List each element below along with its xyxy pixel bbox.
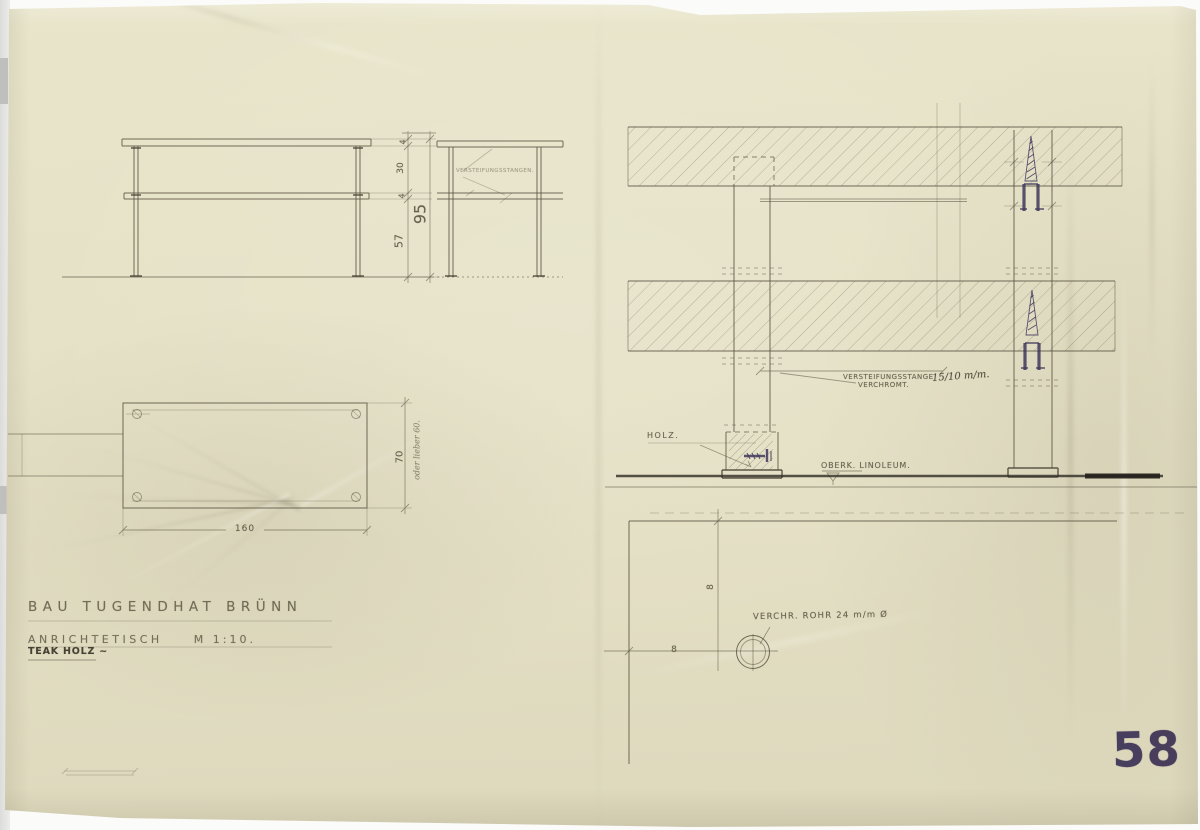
plan-view-drawing xyxy=(8,397,412,536)
scanned-drawing-sheet: 4 30 4 57 95 VERSTEIFUNGSSTANGEN. 160 70… xyxy=(0,0,1200,830)
front-elevation-drawing xyxy=(62,131,440,283)
stiffener-label-line1: VERSTEIFUNGSSTANGE xyxy=(843,373,934,381)
dim-plan-depth-note: oder lieber 60. xyxy=(413,420,422,480)
section-detail-drawing xyxy=(605,103,1197,513)
dim-top-thickness: 4 xyxy=(399,139,408,144)
stray-marks xyxy=(62,768,138,775)
plan-detail-drawing xyxy=(604,509,1117,764)
title-project: BAU TUGENDHAT BRÜNN xyxy=(28,599,302,615)
tracing-paper: 4 30 4 57 95 VERSTEIFUNGSSTANGEN. 160 70… xyxy=(0,0,1200,830)
detail-offset-x: 8 xyxy=(706,584,716,590)
drawing-linework xyxy=(0,0,1200,830)
detail-offset-y: 8 xyxy=(671,645,677,655)
stiffener-label-line2: VERCHROMT. xyxy=(858,381,909,389)
dim-shelf-thickness: 4 xyxy=(398,193,407,198)
dim-total-height: 95 xyxy=(411,204,430,224)
title-scale: M 1:10. xyxy=(194,633,256,646)
scanner-mark xyxy=(0,486,7,514)
dim-plan-length: 160 xyxy=(235,524,255,534)
end-elevation-note: VERSTEIFUNGSSTANGEN. xyxy=(456,168,534,174)
dim-clear-height: 30 xyxy=(396,162,406,173)
dim-leg-height: 57 xyxy=(393,234,406,248)
title-subject: ANRICHTETISCH xyxy=(28,633,163,646)
title-subject-row: ANRICHTETISCH M 1:10. xyxy=(28,628,256,647)
end-elevation-drawing xyxy=(437,141,563,277)
title-material: TEAK HOLZ ~ xyxy=(28,646,108,657)
floor-level-label: OBERK. LINOLEUM. xyxy=(821,461,910,470)
dim-plan-depth: 70 xyxy=(395,451,406,464)
scanner-mark xyxy=(0,58,8,104)
wood-label: HOLZ. xyxy=(647,431,679,440)
page-number-stamp: 58 xyxy=(1111,721,1181,778)
